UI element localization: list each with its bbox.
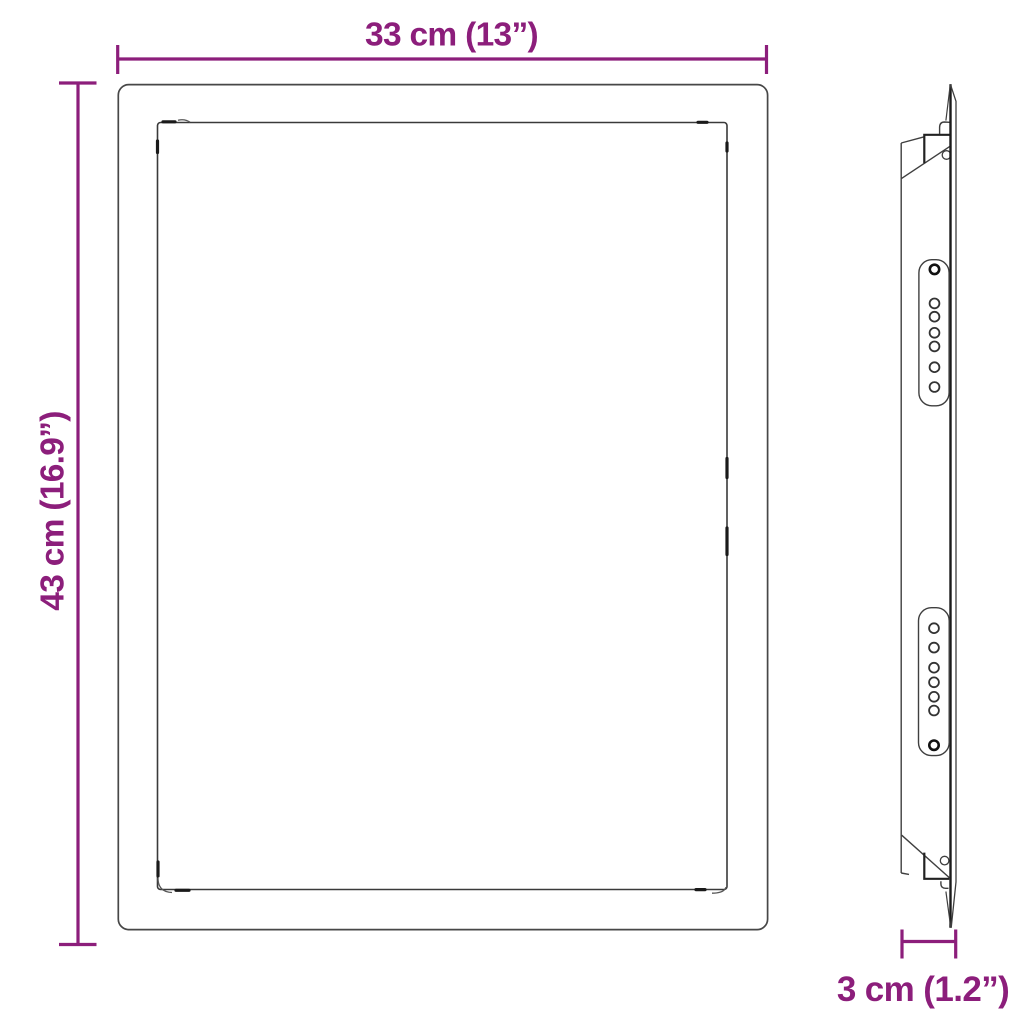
- svg-text:33 cm (13”): 33 cm (13”): [365, 17, 538, 54]
- svg-text:43 cm (16.9”): 43 cm (16.9”): [35, 411, 72, 610]
- svg-text:3 cm (1.2”): 3 cm (1.2”): [837, 970, 1009, 1009]
